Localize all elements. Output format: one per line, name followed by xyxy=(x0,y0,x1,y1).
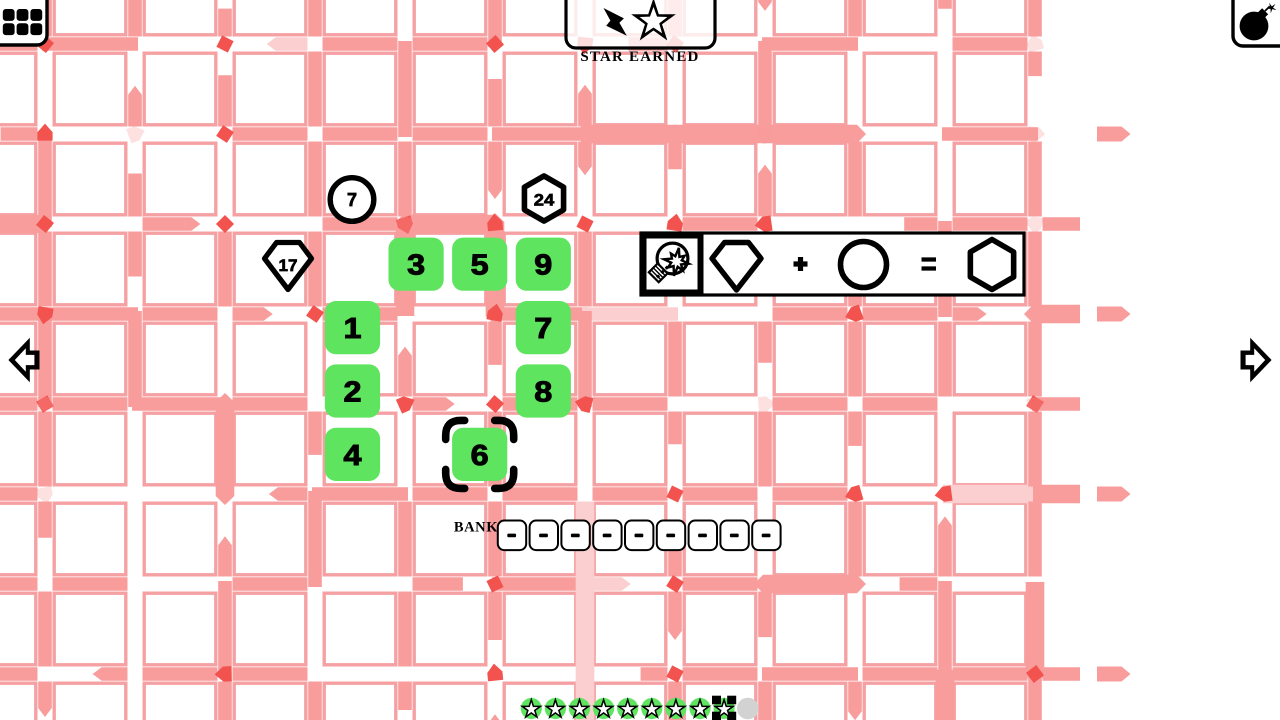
svg-text:BANK: BANK xyxy=(454,520,498,536)
svg-text:6: 6 xyxy=(471,440,489,472)
svg-text:3: 3 xyxy=(407,250,425,282)
svg-text:2: 2 xyxy=(344,376,362,408)
svg-text:STAR EARNED: STAR EARNED xyxy=(580,49,699,65)
svg-text:24: 24 xyxy=(534,190,555,209)
svg-text:8: 8 xyxy=(534,376,552,408)
svg-text:7: 7 xyxy=(347,190,357,210)
svg-text:17: 17 xyxy=(279,256,298,275)
svg-text:4: 4 xyxy=(344,440,362,472)
svg-text:9: 9 xyxy=(534,250,552,282)
svg-text:5: 5 xyxy=(471,250,489,282)
svg-text:1: 1 xyxy=(344,313,362,345)
svg-text:7: 7 xyxy=(534,313,552,345)
